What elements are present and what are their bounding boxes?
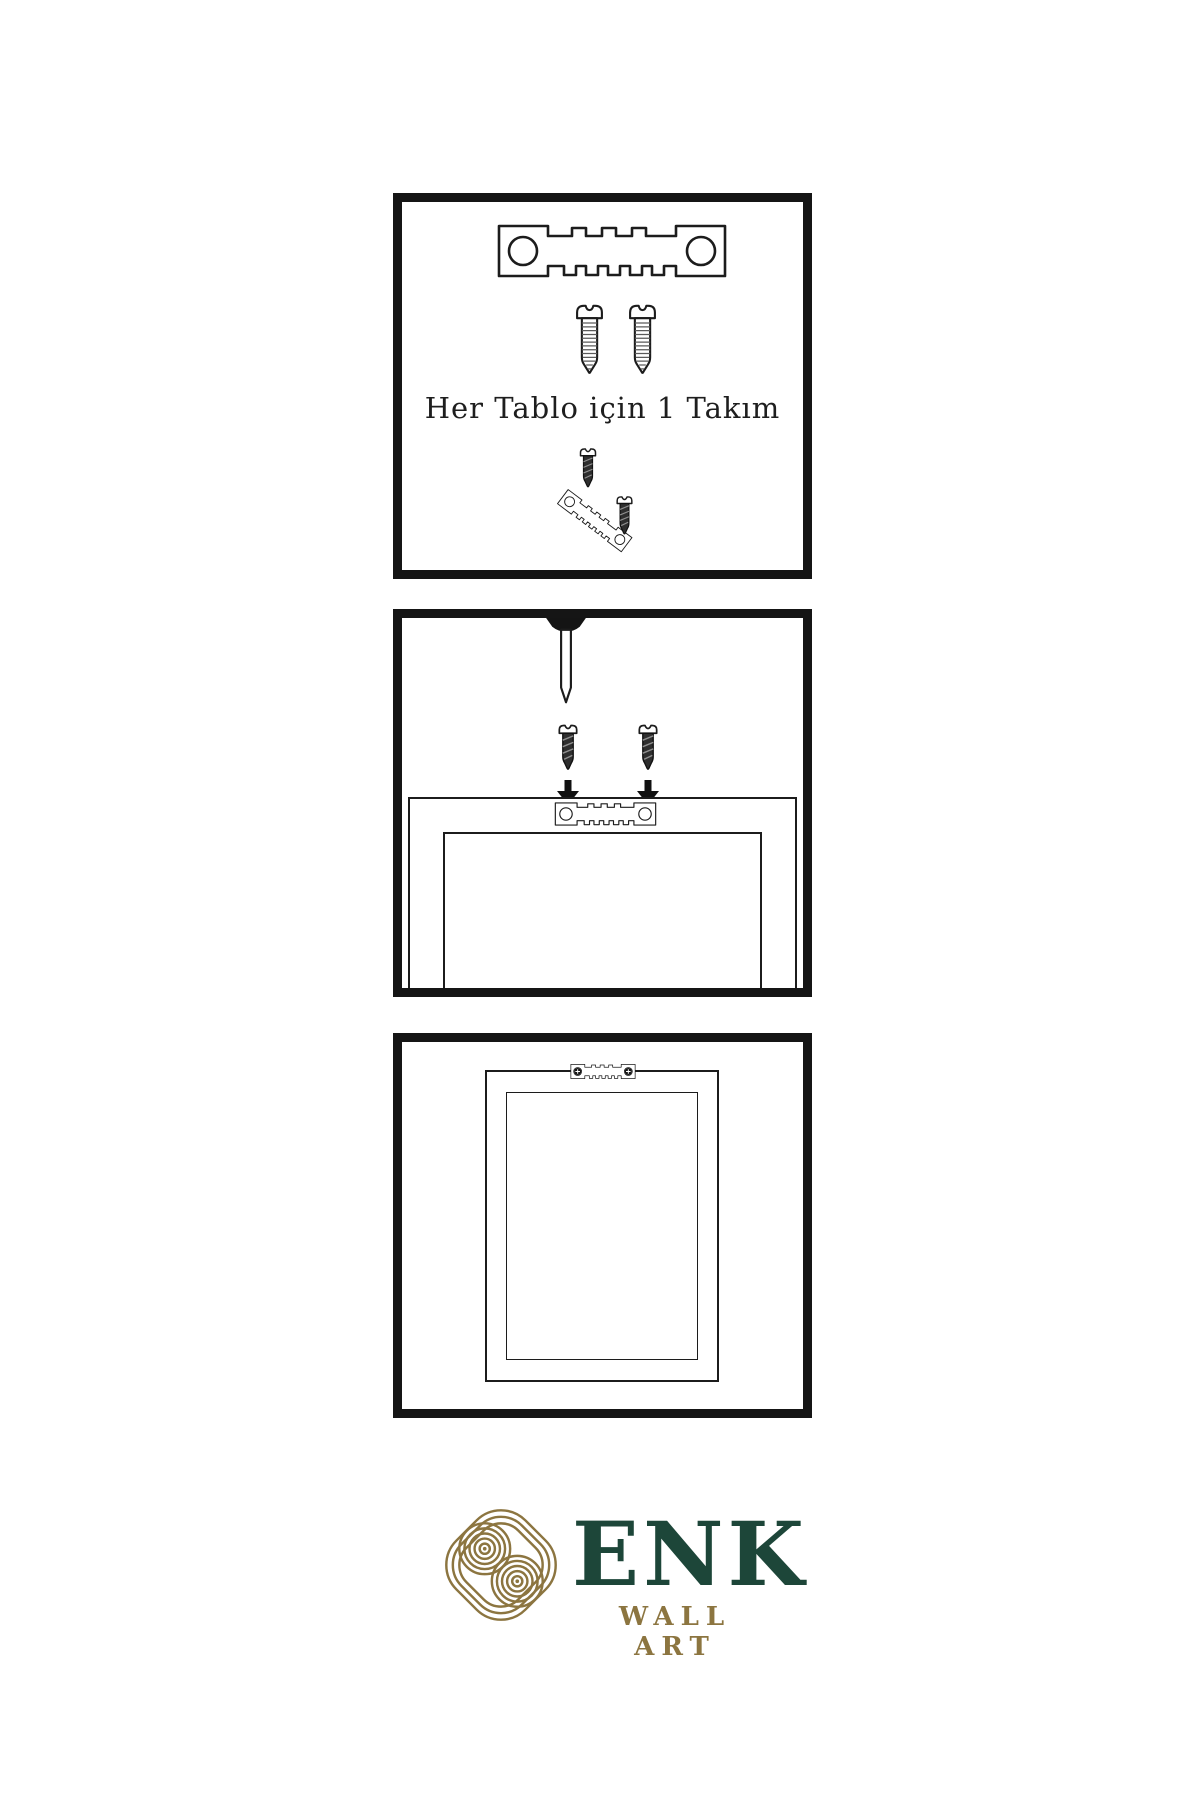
dark-screw-icon: [555, 722, 581, 774]
brand-letter: K: [728, 1516, 804, 1592]
instruction-sheet: Her Tablo için 1 Takım: [0, 0, 1200, 1800]
brand-letter: E: [572, 1516, 639, 1592]
step-2-panel: [393, 609, 812, 997]
wall-nail-icon: [544, 617, 588, 715]
brand-name: E N K: [572, 1516, 778, 1596]
dark-screw-icon: [577, 446, 599, 491]
sawtooth-hanger-icon: [496, 223, 728, 279]
dark-screw-icon: [614, 494, 635, 538]
knot-icon: [440, 1502, 562, 1628]
sawtooth-hanger-icon: [554, 801, 657, 827]
step-3-panel: [393, 1033, 812, 1418]
step-1-caption: Her Tablo için 1 Takım: [402, 391, 803, 425]
brand-subtitle: WALL ART: [572, 1602, 778, 1662]
screw-icon: [624, 302, 661, 386]
brand-name-block: E N K WALL ART: [572, 1516, 778, 1662]
dark-screw-icon: [635, 722, 661, 774]
brand-letter: N: [643, 1516, 723, 1592]
hung-frame-opening: [506, 1092, 698, 1360]
hanger-assembly-detail: [562, 446, 672, 556]
screw-icon: [571, 302, 608, 386]
frame-back-opening: [443, 832, 762, 997]
step-1-panel: Her Tablo için 1 Takım: [393, 193, 812, 579]
brand-logo: E N K WALL ART: [440, 1498, 780, 1648]
sawtooth-hanger-screwed-icon: [570, 1061, 636, 1082]
